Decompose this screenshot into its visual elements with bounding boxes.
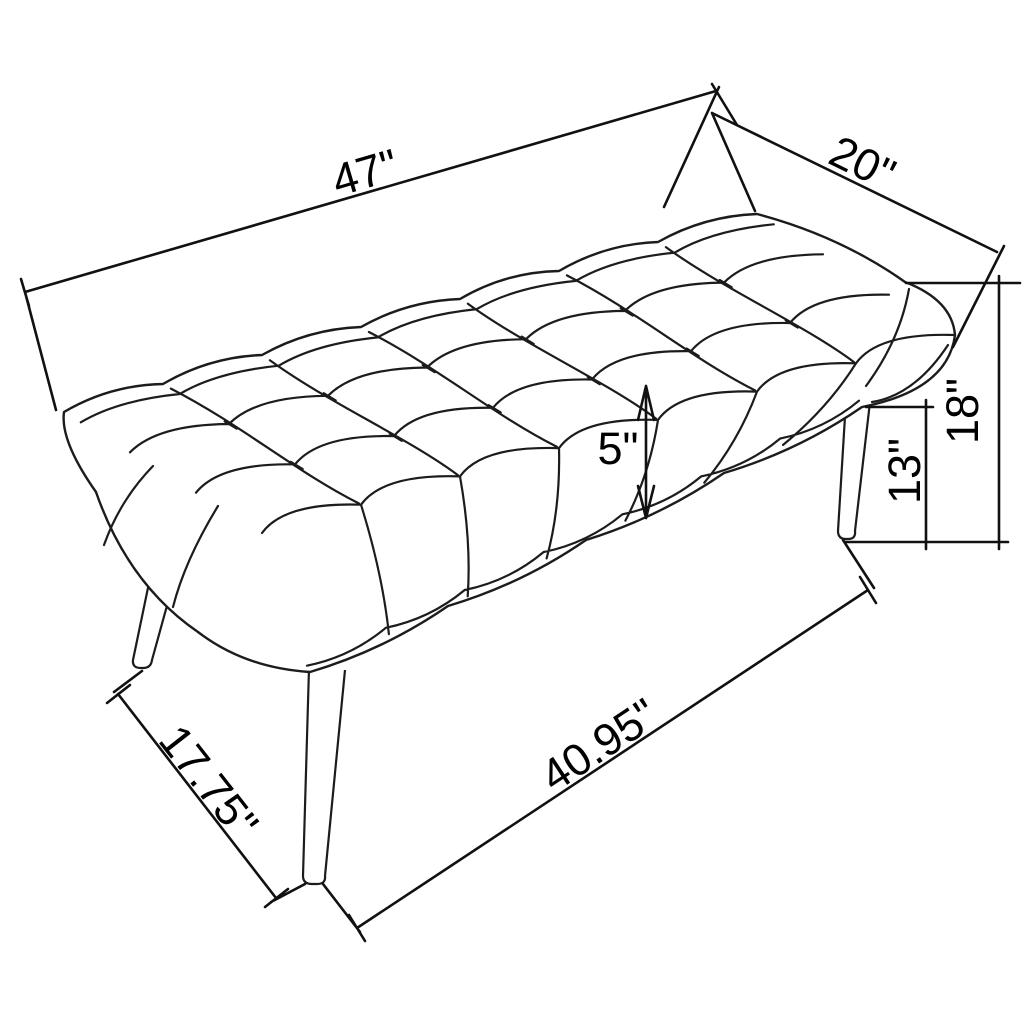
- diagram-canvas: 47" 20" 18" 13" 5" 40.95" 17.75": [0, 0, 1024, 1024]
- label-top-length: 47": [326, 139, 404, 206]
- label-base-length: 40.95": [531, 688, 666, 802]
- bench-dimension-diagram: 47" 20" 18" 13" 5" 40.95" 17.75": [0, 0, 1024, 1024]
- label-cushion-thickness: 5": [597, 423, 638, 474]
- bench-leg-front: [303, 668, 345, 884]
- label-base-depth: 17.75": [149, 715, 268, 848]
- label-top-depth: 20": [822, 125, 904, 200]
- label-leg-height: 13": [879, 438, 930, 504]
- label-overall-height: 18": [937, 378, 988, 444]
- cushion-outline: [64, 214, 955, 672]
